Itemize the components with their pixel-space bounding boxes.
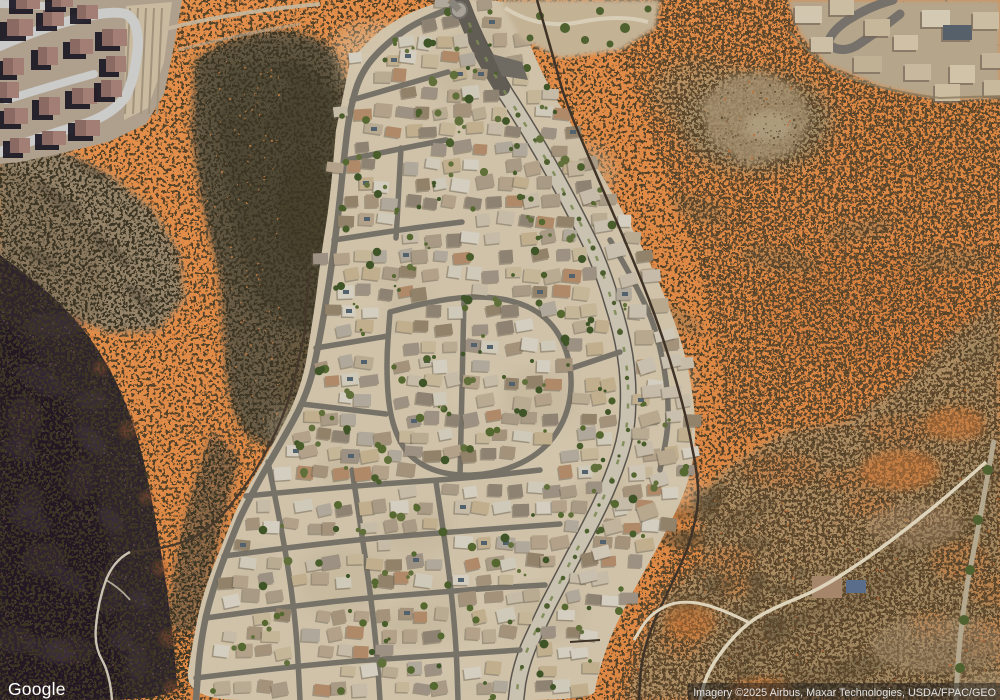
svg-text:Google: Google <box>8 679 66 699</box>
svg-text:Imagery ©2025 Airbus, Maxar Te: Imagery ©2025 Airbus, Maxar Technologies… <box>693 687 996 699</box>
